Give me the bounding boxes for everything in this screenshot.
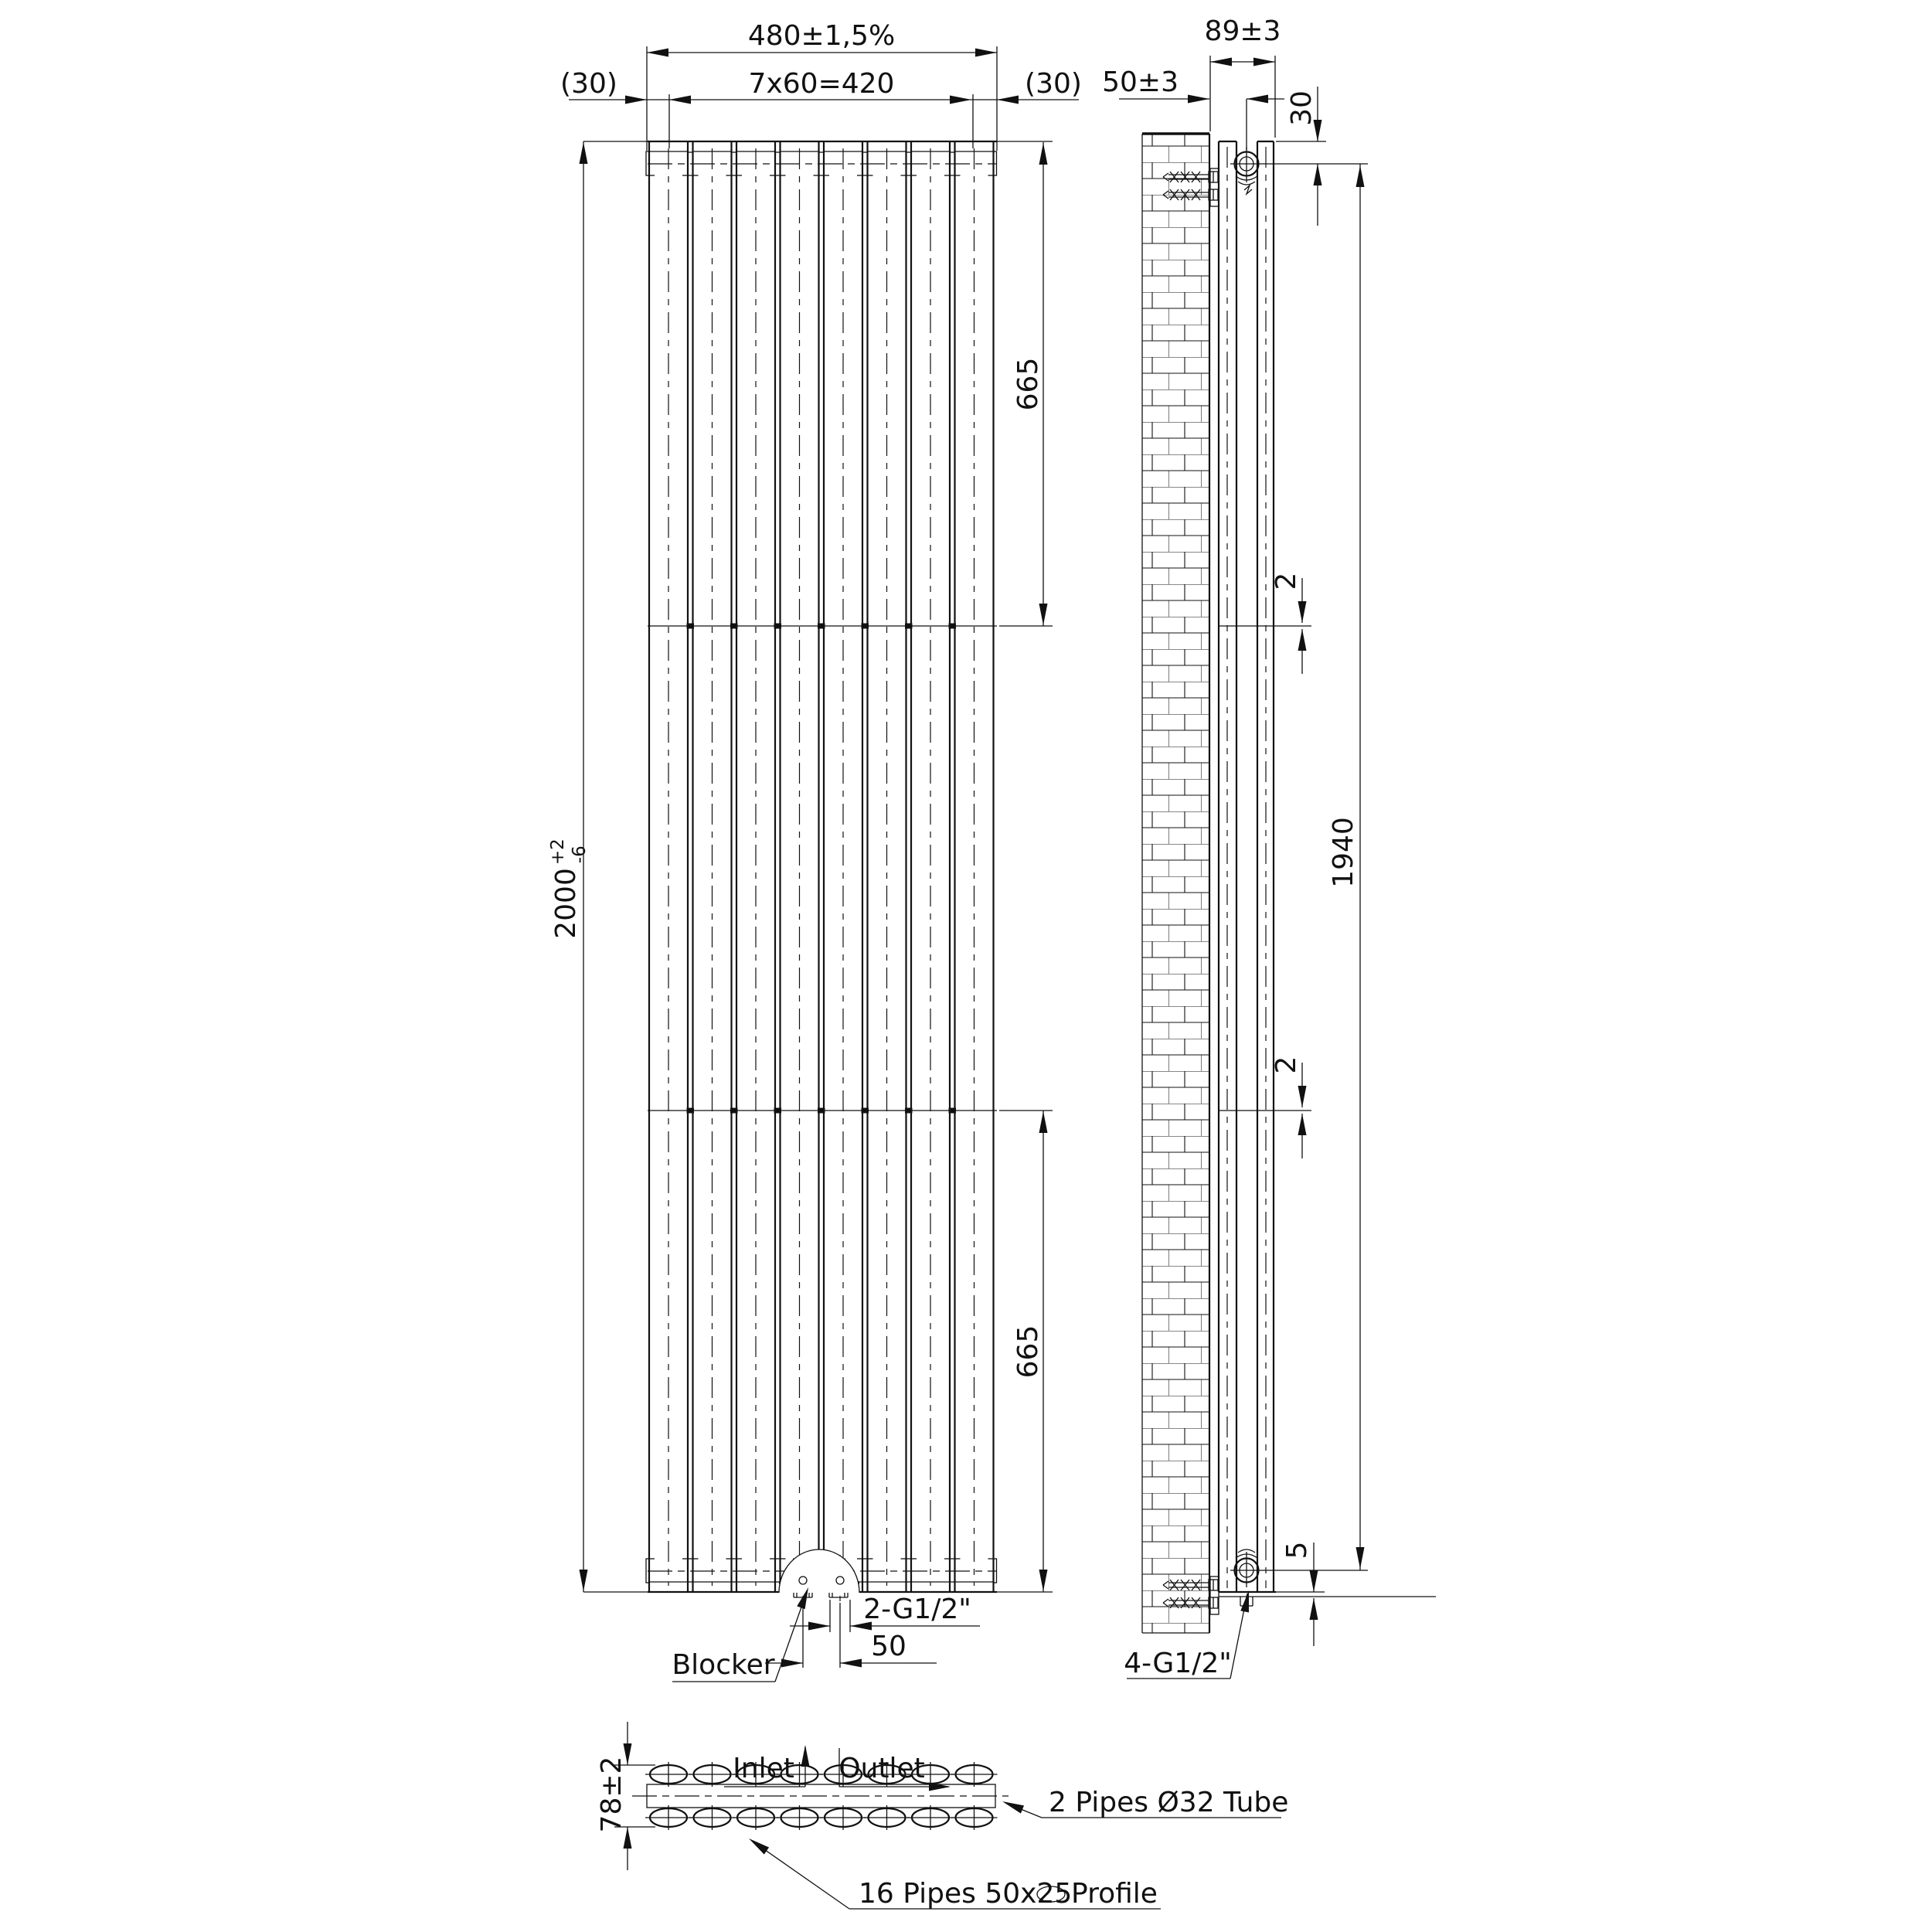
dim-segment-top: 665 — [1012, 358, 1044, 411]
dim-thickness: 78±2 — [596, 1757, 628, 1833]
label-pipes-prefix: 16 Pipes 50x25 — [859, 1878, 1072, 1910]
dim-segment-bottom: 665 — [1012, 1325, 1044, 1379]
dim-seam-lower: 2 — [1270, 1056, 1302, 1074]
side-view-labels: 89±3 50±3 30 2 2 1940 5 4-G1/2" — [1102, 15, 1359, 1679]
dim-connection-centers: 1940 — [1328, 817, 1359, 888]
label-blocker: Blocker — [672, 1649, 774, 1681]
drawing-geometry — [569, 46, 1436, 1909]
dim-end-right: (30) — [1025, 68, 1082, 100]
dim-pitch: 7x60=420 — [749, 68, 895, 100]
front-view-labels: 480±1,5% 7x60=420 (30) (30) 2000+2-6 665… — [548, 20, 1082, 1784]
label-connections: 4-G1/2" — [1124, 1648, 1232, 1679]
dim-seam-upper: 2 — [1270, 573, 1302, 590]
label-inlet: Inlet — [733, 1753, 794, 1784]
dim-top-offset: 30 — [1286, 90, 1318, 126]
section-view-labels: 78±2 2 Pipes Ø32 Tube 16 Pipes 50x25 Pro… — [596, 1757, 1288, 1910]
dim-port-spacing: 50 — [871, 1631, 906, 1662]
drawing-sheet: 480±1,5% 7x60=420 (30) (30) 2000+2-6 665… — [0, 0, 1932, 1932]
dim-bottom-gap: 5 — [1281, 1542, 1313, 1560]
dim-total-width: 480±1,5% — [748, 20, 895, 52]
dim-end-left: (30) — [560, 68, 617, 100]
dim-ports: 2-G1/2" — [863, 1594, 971, 1625]
label-tubes: 2 Pipes Ø32 Tube — [1049, 1787, 1288, 1818]
technical-drawing: 480±1,5% 7x60=420 (30) (30) 2000+2-6 665… — [0, 0, 1932, 1932]
label-pipes-suffix: Profile — [1071, 1878, 1158, 1910]
label-outlet: Outlet — [838, 1753, 925, 1784]
dim-depth: 89±3 — [1205, 15, 1281, 47]
dim-wall-to-pipe: 50±3 — [1102, 66, 1179, 98]
